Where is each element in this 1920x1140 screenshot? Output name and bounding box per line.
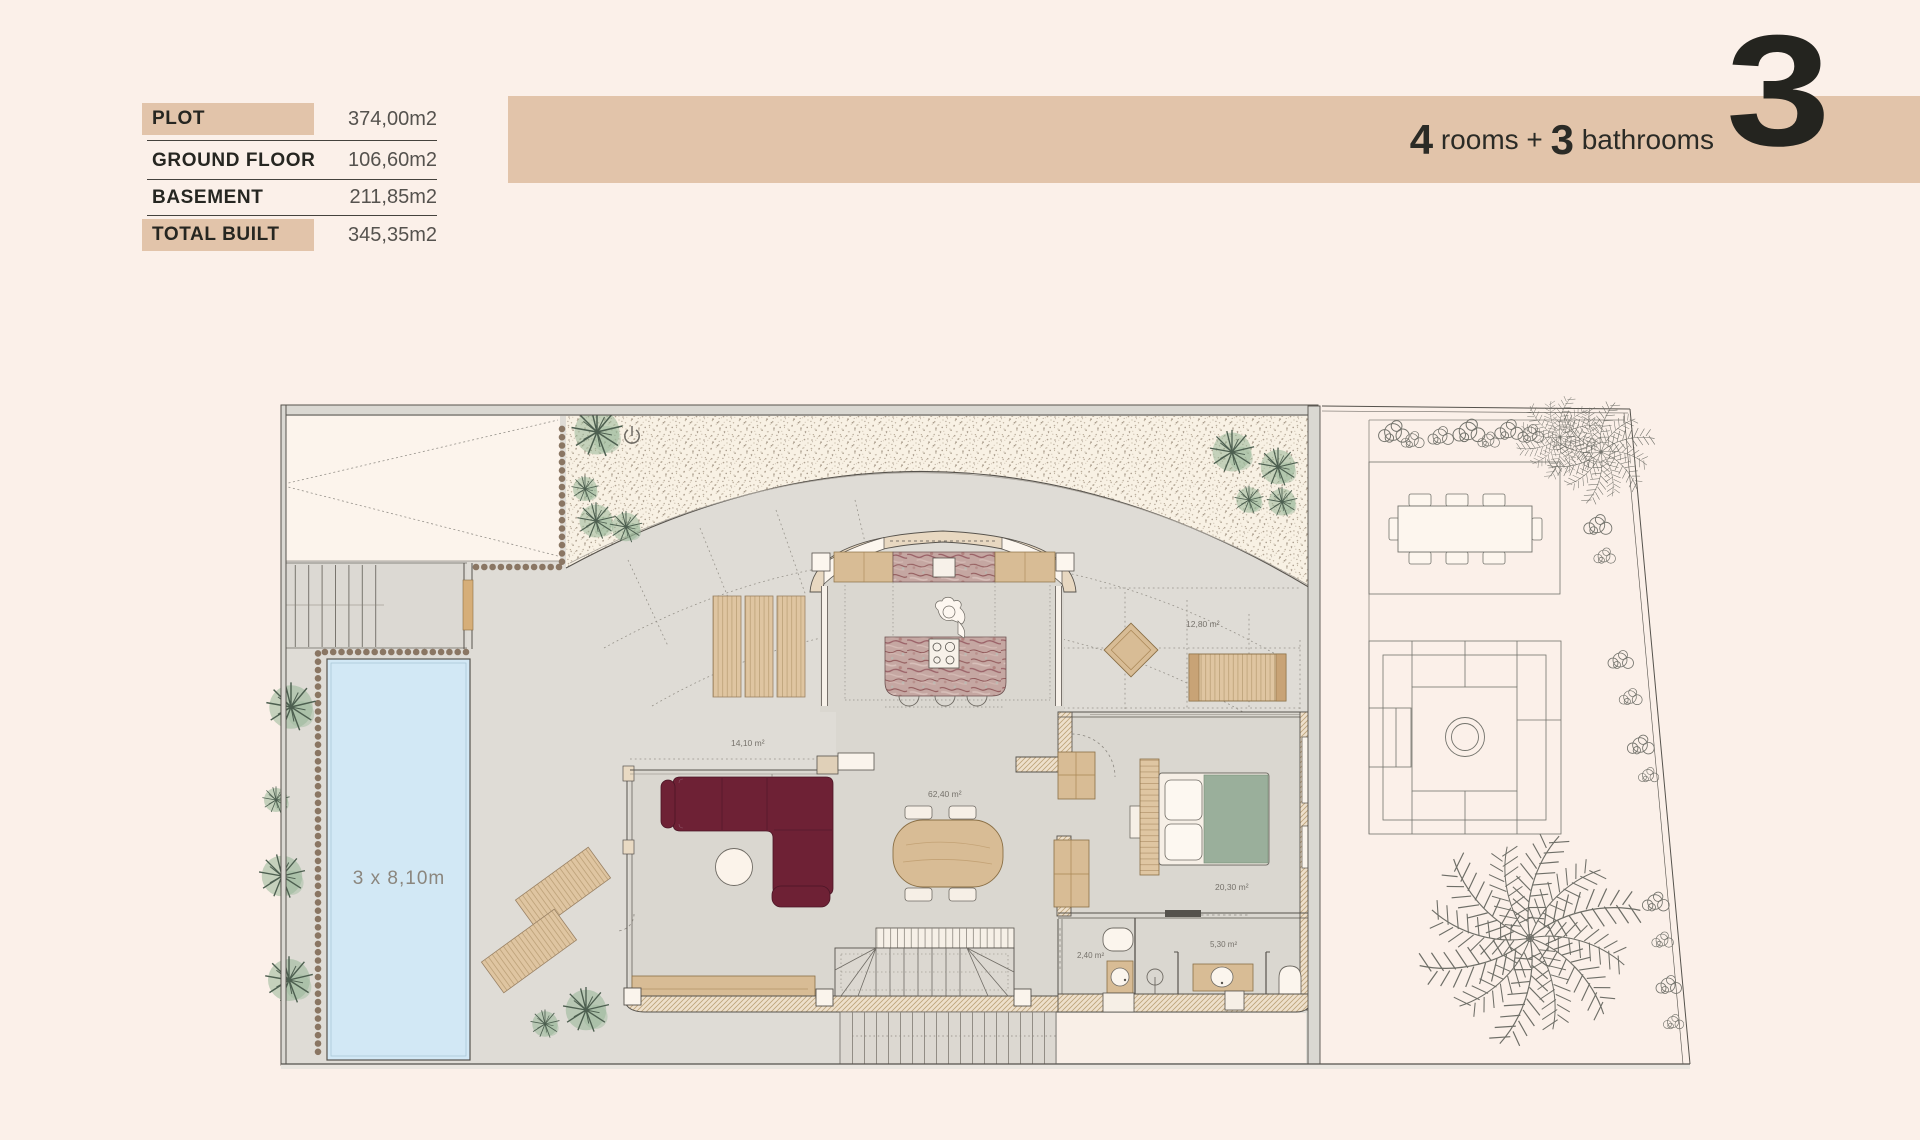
svg-text:2,40 m²: 2,40 m² bbox=[1077, 951, 1104, 960]
svg-text:3 x 8,10m: 3 x 8,10m bbox=[353, 868, 445, 889]
svg-text:20,30 m²: 20,30 m² bbox=[1215, 882, 1249, 892]
svg-text:14,10 m²: 14,10 m² bbox=[731, 738, 765, 748]
svg-text:5,30 m²: 5,30 m² bbox=[1210, 940, 1237, 949]
svg-text:12,80 m²: 12,80 m² bbox=[1186, 619, 1220, 629]
svg-text:62,40 m²: 62,40 m² bbox=[928, 789, 962, 799]
